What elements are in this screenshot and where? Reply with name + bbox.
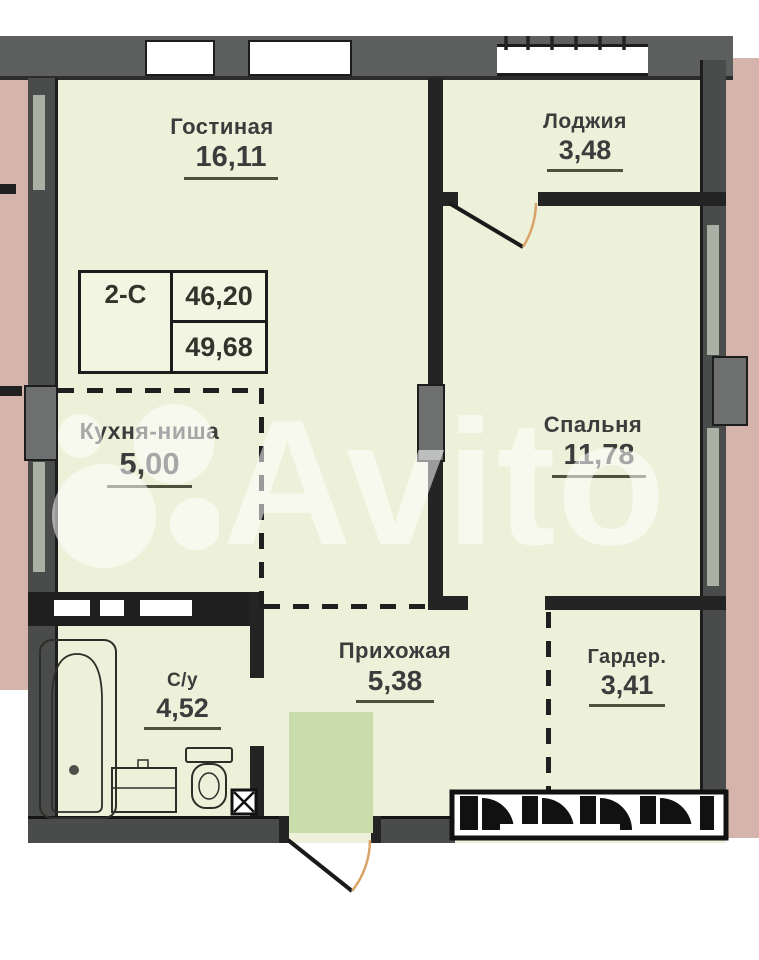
- floor-plan: Гостиная 16,11 Лоджия 3,48 Кухня-ниша 5,…: [0, 0, 759, 960]
- entrance-door: [288, 840, 370, 891]
- room-label-loggia: Лоджия 3,48: [500, 110, 670, 172]
- wall-loggia-jamb: [428, 192, 458, 206]
- window-left-2: [33, 462, 45, 572]
- room-name: Спальня: [498, 412, 688, 438]
- wall-living-bedroom: [428, 78, 443, 610]
- window-living-1: [145, 40, 215, 76]
- kitchen-counter-segment: [100, 600, 124, 616]
- kitchen-counter-segment: [140, 600, 192, 616]
- adjacent-wall-left: [0, 75, 28, 690]
- room-area: 11,78: [498, 439, 688, 478]
- room-name: Прихожая: [300, 638, 490, 664]
- wall-top-outer: [0, 36, 440, 58]
- wall-bottom-left: [28, 816, 288, 843]
- wall-loggia-bedroom: [538, 192, 726, 206]
- room-label-living: Гостиная 16,11: [117, 114, 327, 180]
- window-right-1: [707, 225, 719, 355]
- wall-bedroom-wardrobe: [545, 596, 726, 610]
- pillar-mid: [417, 384, 445, 462]
- hallway-zone-dash: [264, 604, 432, 609]
- room-label-bathroom: С/у 4,52: [125, 670, 240, 730]
- kitchen-zone-dash-right: [259, 388, 264, 608]
- room-area: 16,11: [117, 141, 327, 180]
- window-living-2: [248, 40, 352, 76]
- room-area: 5,00: [52, 446, 247, 488]
- door-swing-arc: [352, 840, 370, 891]
- kitchen-zone-dash-top: [58, 388, 262, 393]
- wall-top-inner-right: [352, 58, 440, 78]
- pillar-right: [712, 356, 748, 426]
- info-table: 2-С 46,20 49,68: [78, 270, 268, 374]
- room-name: С/у: [125, 670, 240, 692]
- wall-top-pier: [215, 58, 248, 78]
- window-left-1: [33, 95, 45, 190]
- room-label-kitchen: Кухня-ниша 5,00: [52, 418, 247, 488]
- room-name: Гостиная: [117, 114, 327, 140]
- room-area: 4,52: [125, 693, 240, 730]
- window-right-2: [707, 428, 719, 586]
- kitchen-counter-segment: [54, 600, 90, 616]
- room-label-hallway: Прихожая 5,38: [300, 638, 490, 703]
- wall-bottom-mid: [372, 816, 455, 843]
- wall-bedroom-foot: [443, 596, 468, 610]
- room-area: 5,38: [300, 665, 490, 703]
- room-name: Лоджия: [500, 110, 670, 134]
- adjacent-wall-right: [726, 58, 759, 838]
- wardrobe-zone-dash: [546, 612, 551, 792]
- layout-type-label: 2-С: [81, 273, 173, 371]
- room-name: Кухня-ниша: [52, 418, 247, 445]
- room-area: 3,48: [500, 135, 670, 172]
- living-area-value: 46,20: [173, 273, 265, 323]
- loggia-glazing: [497, 44, 648, 76]
- wall-top-edge-line: [0, 76, 733, 80]
- room-area: 3,41: [552, 670, 702, 707]
- wall-loggia-block-left: [440, 36, 497, 78]
- entrance-jamb-left: [279, 816, 289, 843]
- room-label-bedroom: Спальня 11,78: [498, 412, 688, 478]
- wall-top-inner-left: [0, 58, 148, 78]
- total-area-value: 49,68: [173, 323, 265, 371]
- entrance-door-highlight: [289, 712, 373, 833]
- room-name: Гардер.: [552, 646, 702, 669]
- room-label-wardrobe: Гардер. 3,41: [552, 646, 702, 707]
